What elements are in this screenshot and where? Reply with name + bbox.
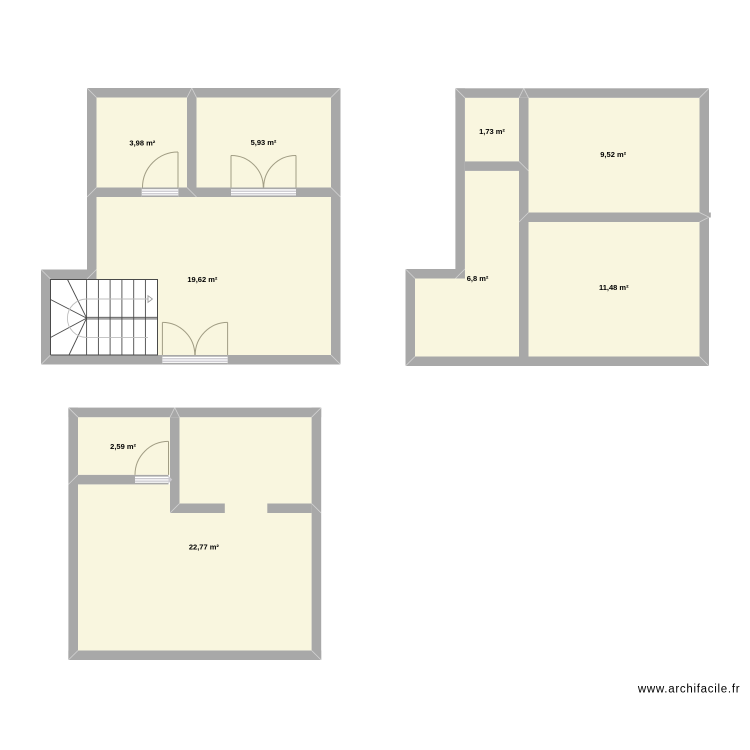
svg-text:6,8 m²: 6,8 m² — [467, 274, 489, 283]
svg-text:2,59 m²: 2,59 m² — [110, 442, 136, 451]
svg-text:11,48 m²: 11,48 m² — [599, 283, 629, 292]
svg-text:22,77 m²: 22,77 m² — [189, 543, 220, 552]
svg-text:9,52 m²: 9,52 m² — [600, 150, 626, 159]
svg-text:19,62 m²: 19,62 m² — [187, 275, 218, 284]
svg-text:www.archifacile.fr: www.archifacile.fr — [637, 684, 740, 696]
svg-text:3,98 m²: 3,98 m² — [129, 138, 155, 147]
svg-text:5,93 m²: 5,93 m² — [251, 138, 277, 147]
svg-text:1,73 m²: 1,73 m² — [479, 127, 505, 136]
